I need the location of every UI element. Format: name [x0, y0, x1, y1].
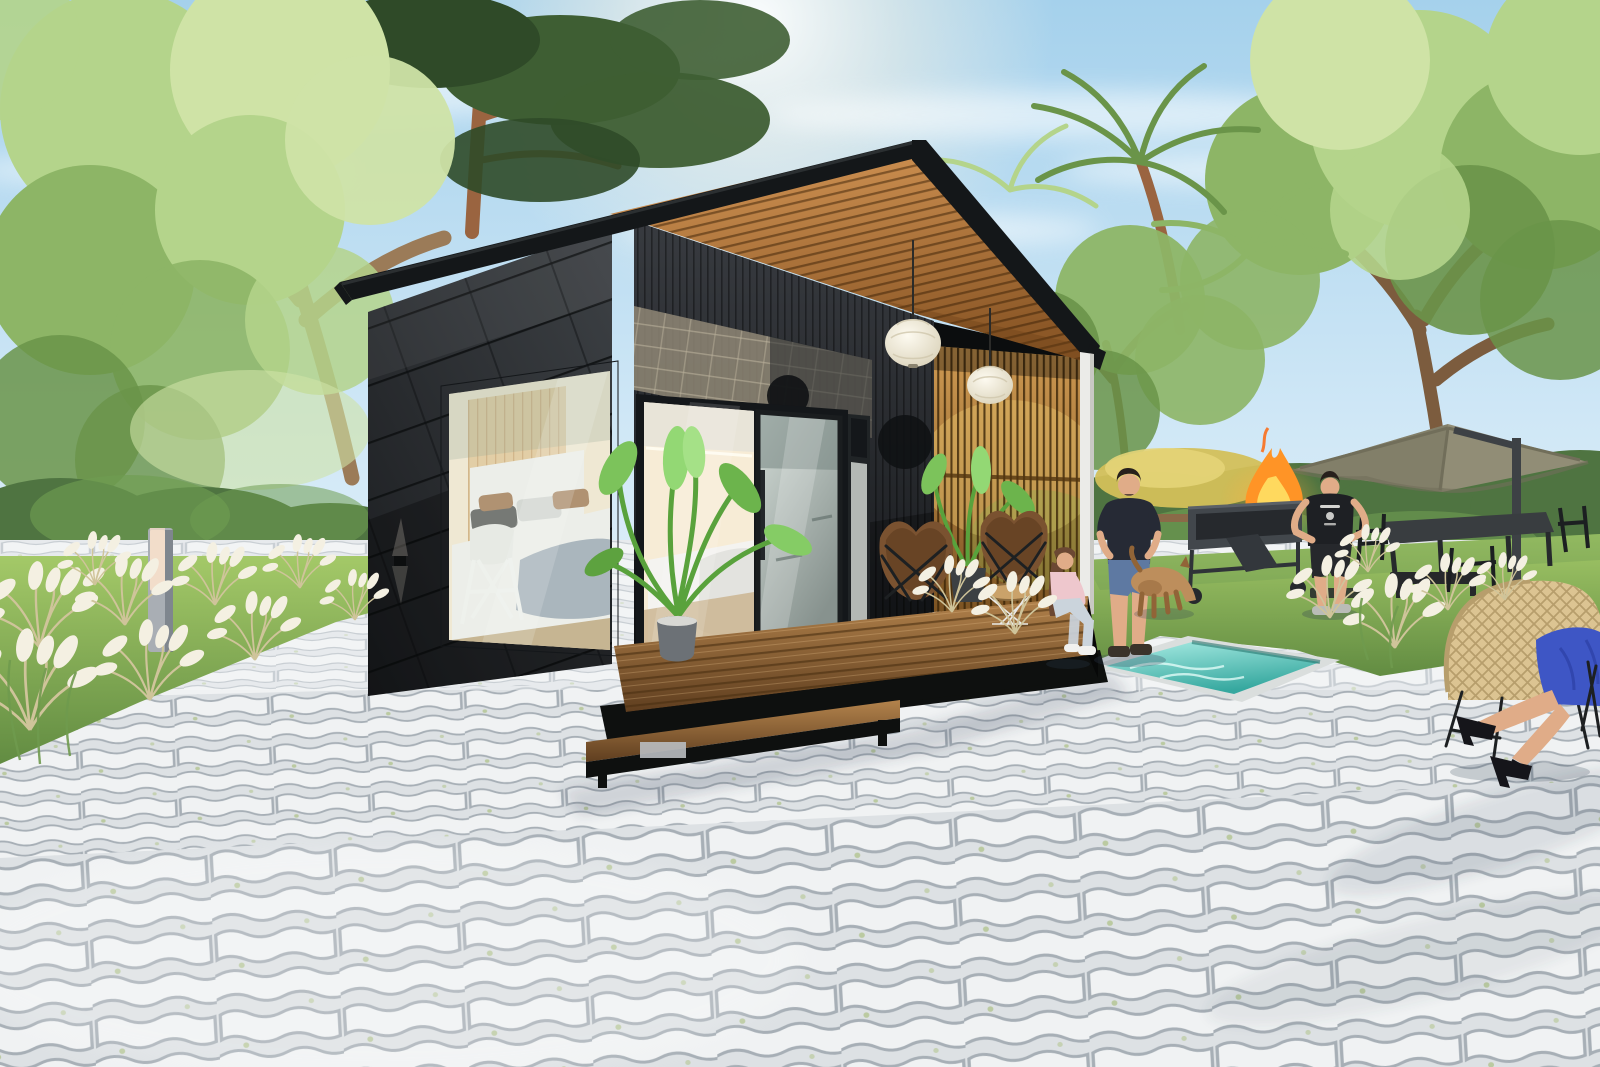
- corner-post-shade: [1090, 354, 1094, 614]
- corner-window: [441, 361, 618, 656]
- girl-shoes: [1078, 646, 1096, 655]
- woman-hand: [1536, 693, 1554, 707]
- narrow-sidelight: [848, 414, 870, 636]
- bedroom-interior: [449, 364, 614, 653]
- grill-side-shelf: [1156, 514, 1188, 522]
- paper-lantern-large: [885, 319, 941, 367]
- sunlit-foliage: [130, 370, 370, 490]
- scene-svg: [0, 0, 1600, 1067]
- stone-block: [640, 742, 686, 758]
- rendered-photo: 3D architectural rendering: black modern…: [0, 0, 1600, 1067]
- girl-face: [1057, 553, 1074, 570]
- round-wall-mirror-2: [878, 415, 932, 469]
- man-shoes: [1108, 646, 1130, 657]
- man-face: [1118, 474, 1140, 496]
- sidelight-top-glass: [851, 418, 867, 458]
- sidelight-frosted: [851, 462, 867, 632]
